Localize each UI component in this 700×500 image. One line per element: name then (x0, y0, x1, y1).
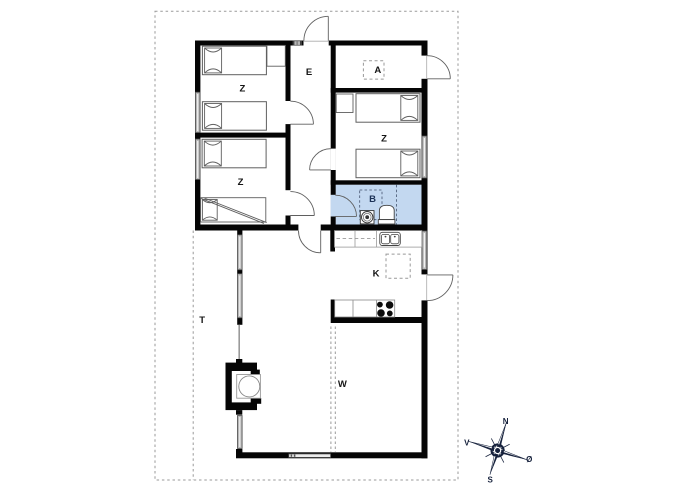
svg-text:E: E (306, 67, 312, 78)
svg-text:Z: Z (238, 177, 244, 188)
svg-text:B: B (369, 194, 376, 205)
svg-text:Z: Z (381, 134, 387, 145)
svg-text:Z: Z (239, 84, 245, 95)
svg-text:K: K (373, 268, 380, 279)
svg-text:T: T (199, 315, 205, 326)
svg-text:N: N (503, 417, 509, 426)
svg-text:S: S (488, 475, 494, 484)
svg-text:Ø: Ø (526, 455, 532, 464)
svg-text:A: A (374, 65, 381, 76)
svg-text:V: V (464, 438, 470, 447)
svg-text:W: W (338, 379, 347, 390)
